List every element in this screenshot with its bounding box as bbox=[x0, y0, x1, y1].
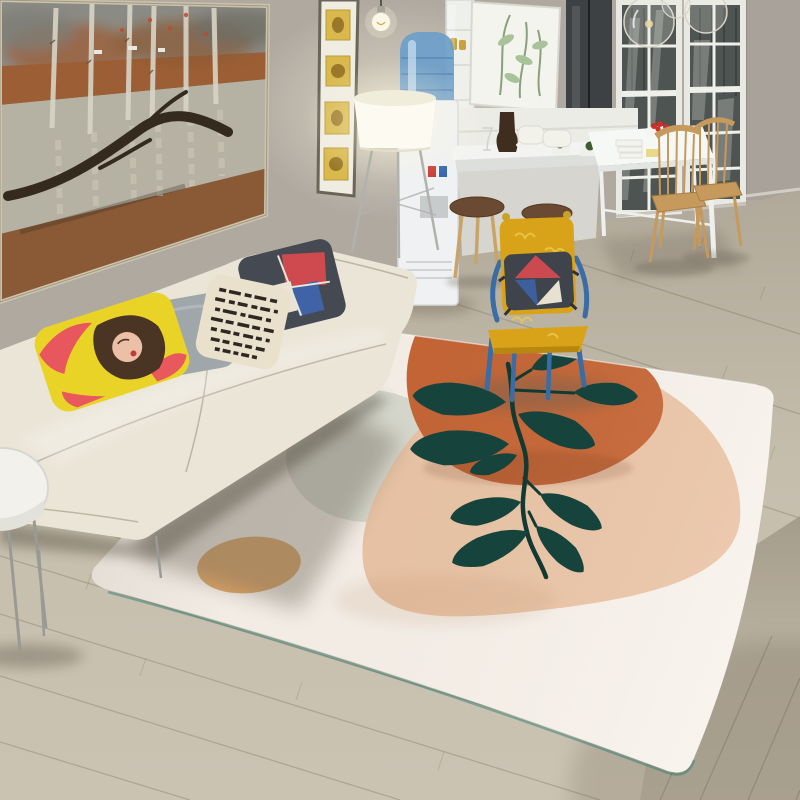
scene-canvas bbox=[0, 0, 800, 800]
book-stack bbox=[616, 140, 642, 158]
right-wall bbox=[746, 0, 800, 200]
bulb-glass bbox=[372, 13, 391, 32]
counter-cushion-2 bbox=[543, 130, 571, 147]
living-room-photo bbox=[0, 0, 800, 800]
counter-cushion-1 bbox=[518, 126, 544, 144]
globe-filament bbox=[645, 20, 653, 28]
chair-shadow-2 bbox=[682, 251, 750, 265]
partition-reflection bbox=[572, 6, 580, 110]
chair-knob-right bbox=[563, 211, 571, 219]
lamp-shade-top bbox=[354, 90, 436, 106]
yellow-notepad bbox=[646, 149, 659, 157]
newsprint-pillow bbox=[193, 272, 293, 372]
chair-cushion bbox=[498, 251, 581, 315]
chair-knob-left bbox=[502, 213, 510, 221]
botanical-print bbox=[470, 2, 560, 112]
black-partition bbox=[566, 0, 612, 120]
